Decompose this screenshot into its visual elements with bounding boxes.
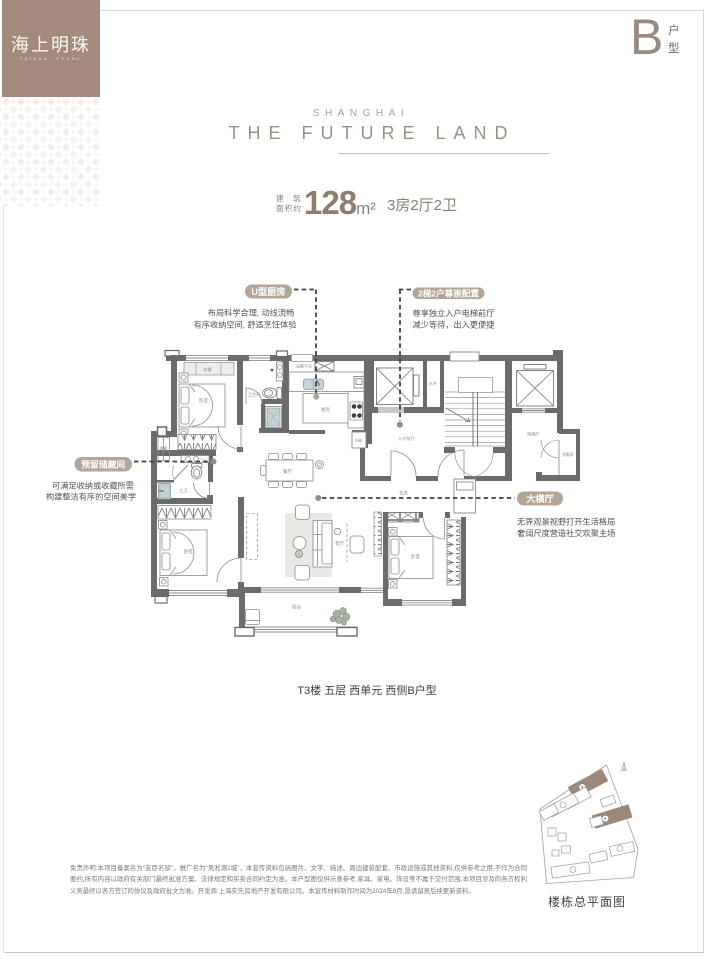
svg-text:减少等待，出入更便捷: 减少等待，出入更便捷 [413,320,495,330]
svg-text:电梯厅: 电梯厅 [527,431,540,438]
svg-text:2梯2户尊崇配置: 2梯2户尊崇配置 [418,287,480,298]
svg-text:玄关: 玄关 [399,490,408,497]
svg-text:入户前厅: 入户前厅 [398,435,415,442]
svg-text:卧室: 卧室 [184,548,193,555]
svg-text:可满足收纳或收藏所需: 可满足收纳或收藏所需 [52,481,134,491]
svg-text:卧室: 卧室 [411,553,420,560]
svg-text:构建整洁有序的空间美学: 构建整洁有序的空间美学 [46,492,136,502]
svg-text:设备平台: 设备平台 [296,363,312,369]
svg-text:卧室: 卧室 [199,397,208,404]
svg-text:预留储藏间: 预留储藏间 [81,459,125,470]
svg-text:U型厨房: U型厨房 [251,286,285,297]
svg-text:尊享独立入户电梯前厅: 尊享独立入户电梯前厅 [413,308,495,318]
svg-text:水井: 水井 [429,381,437,386]
svg-text:衣帽: 衣帽 [203,366,211,373]
svg-text:奢阔尺度营造社交欢聚主场: 奢阔尺度营造社交欢聚主场 [517,528,615,538]
svg-text:储藏: 储藏 [160,446,168,451]
svg-text:主卫: 主卫 [179,487,187,493]
svg-text:有序收纳空间, 舒适烹饪体验: 有序收纳空间, 舒适烹饪体验 [194,320,297,330]
svg-text:冰箱: 冰箱 [355,438,363,443]
svg-text:厨房: 厨房 [321,406,330,413]
svg-text:布局科学合理, 动线流畅: 布局科学合理, 动线流畅 [208,308,294,318]
svg-text:大横厅: 大横厅 [526,493,554,504]
svg-text:餐厅: 餐厅 [283,468,292,475]
svg-text:无界观景视野打开生活格局: 无界观景视野打开生活格局 [517,517,615,527]
svg-text:客厅: 客厅 [335,540,344,547]
svg-text:阳台: 阳台 [292,604,301,611]
svg-text:衣帽间: 衣帽间 [562,452,574,457]
